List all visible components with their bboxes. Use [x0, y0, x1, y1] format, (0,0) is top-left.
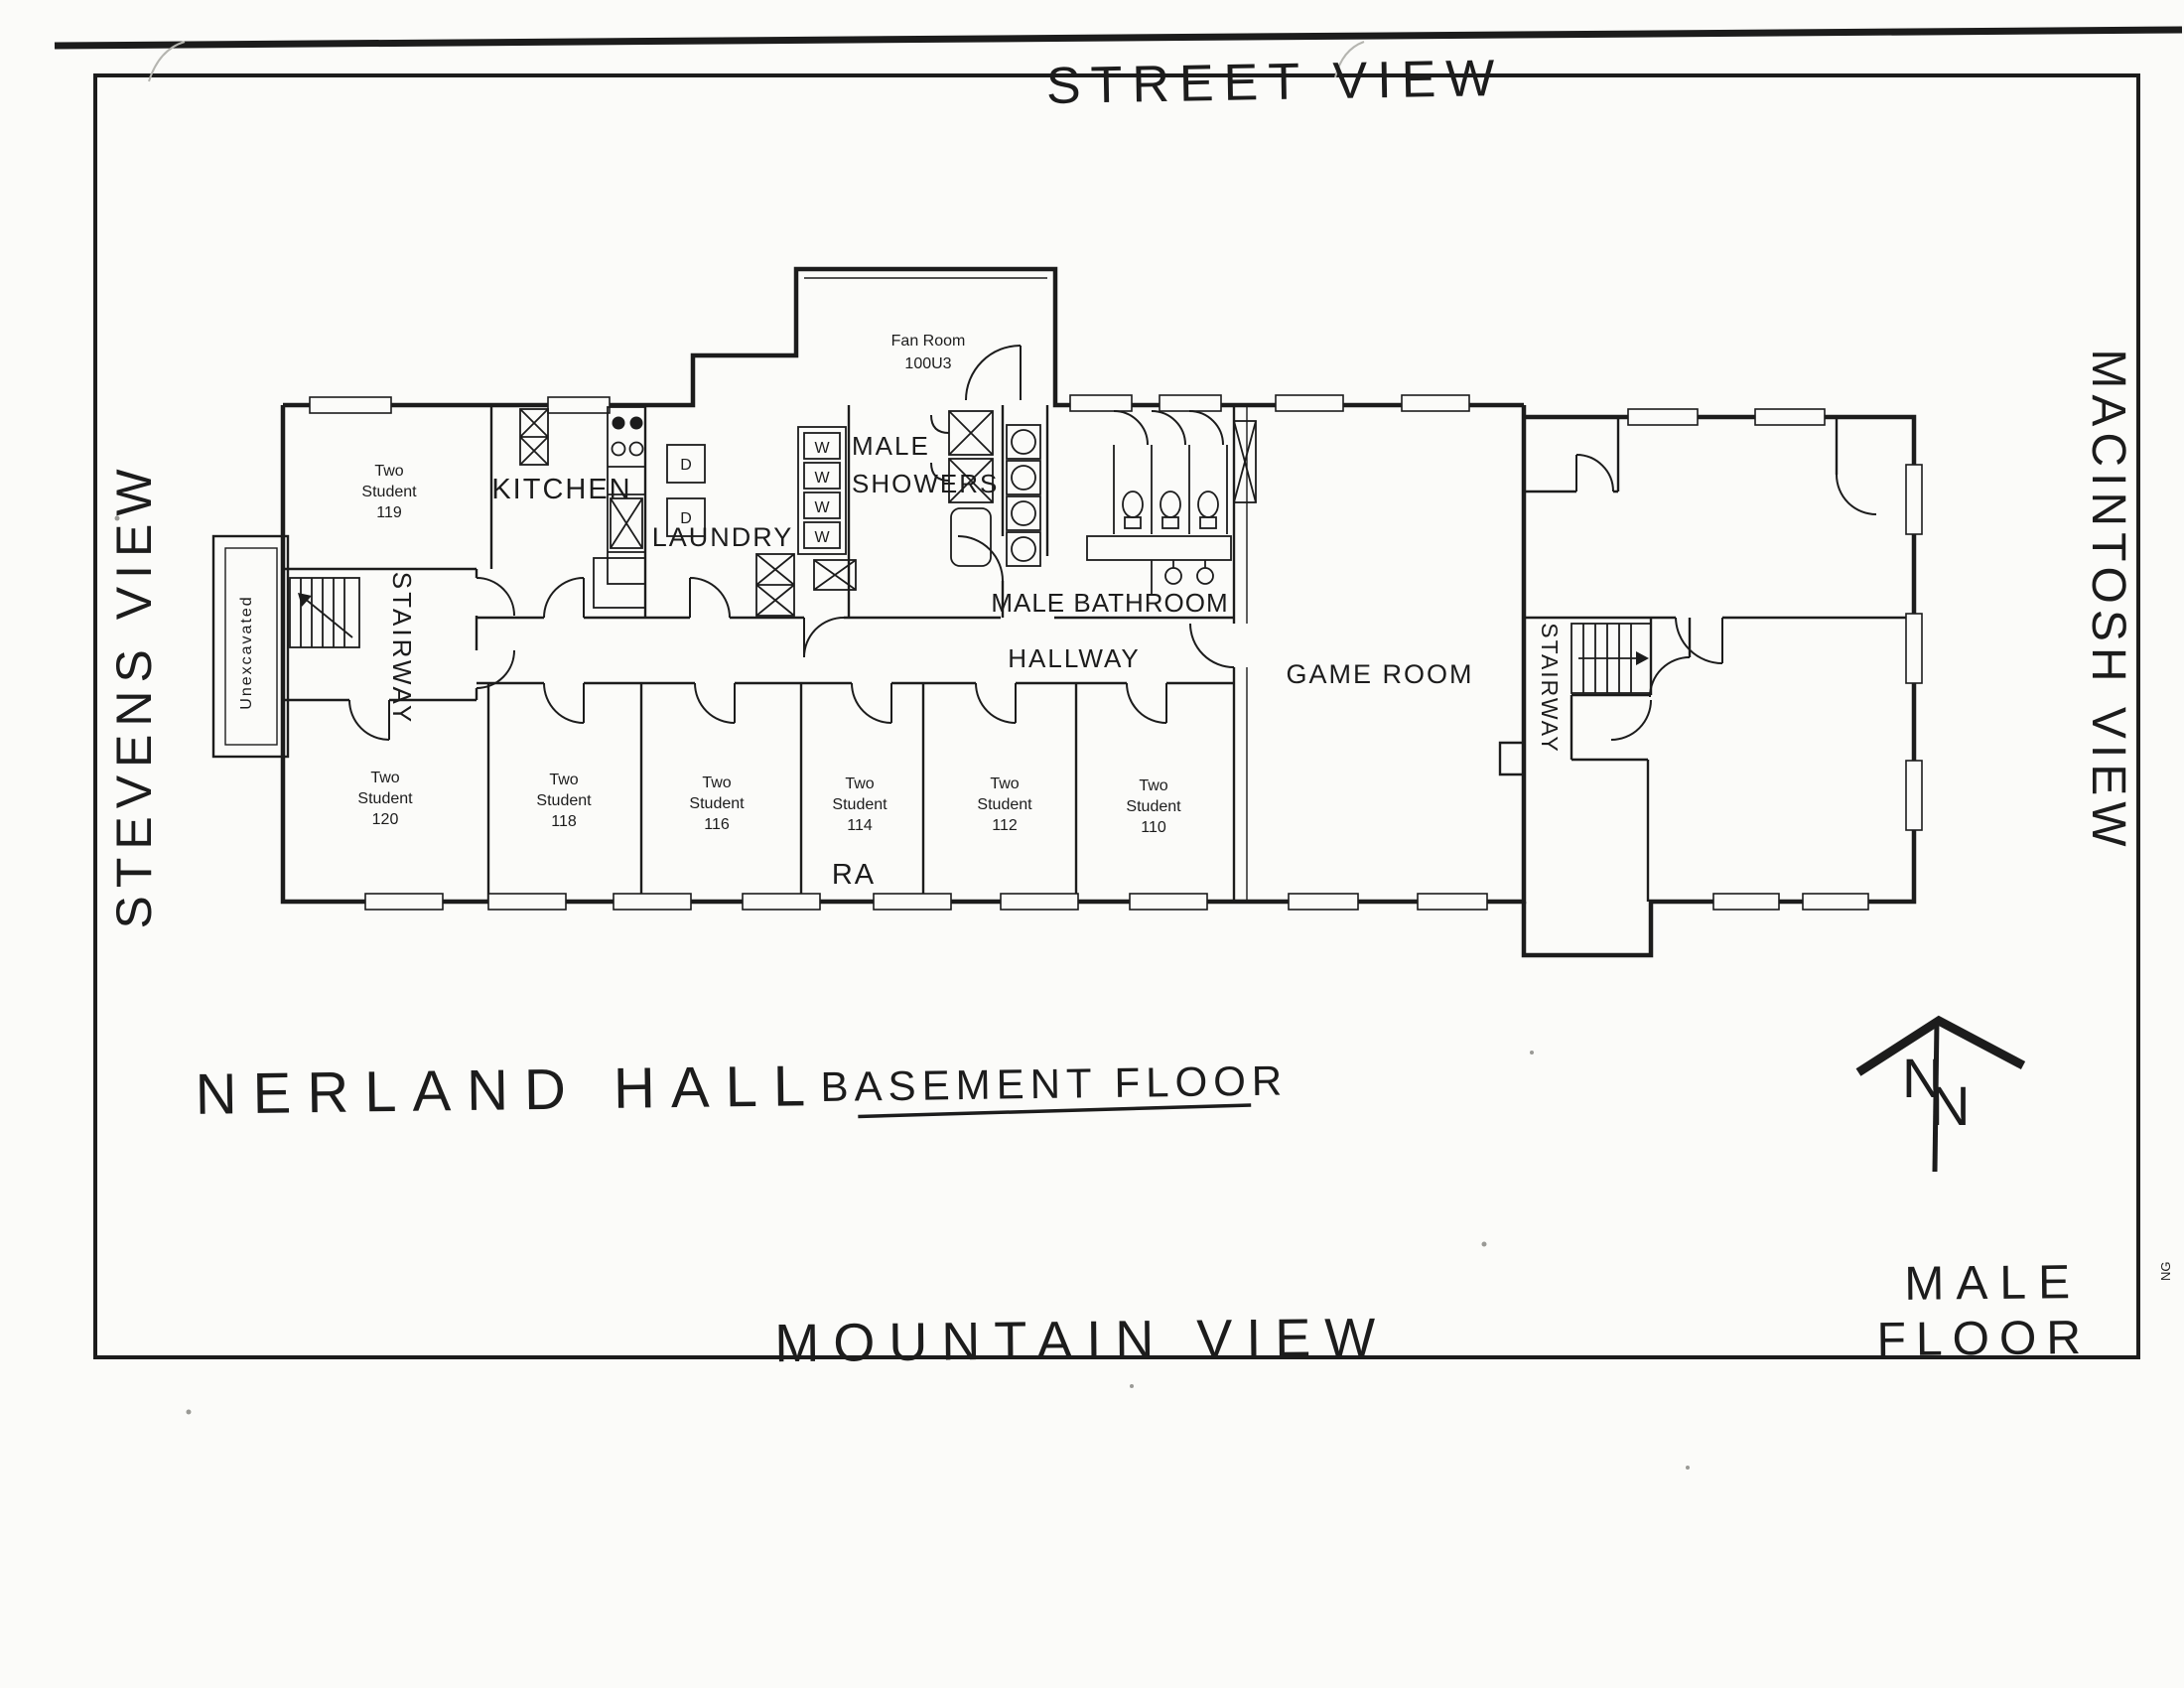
washer-icon: W [804, 522, 840, 548]
laundry-fixtures: D D W W W W [667, 427, 856, 616]
toilet-icon [1160, 492, 1180, 528]
room-label-stairway-east: STAIRWAY [1537, 623, 1563, 753]
fan-room-line1: Fan Room [891, 333, 966, 350]
mountain-view-label: MOUNTAIN VIEW [774, 1308, 1390, 1373]
duct-shaft-icon [520, 409, 548, 465]
room-114-line3: 114 [847, 817, 873, 834]
room-label-116: Two Student 116 [689, 774, 745, 833]
male-floor-label: MALE FLOOR [1876, 1256, 2091, 1366]
room-119-line1: Two [374, 463, 403, 480]
room-118-line3: 118 [551, 813, 577, 830]
sink-icon [1007, 461, 1040, 494]
male-floor-line2: FLOOR [1876, 1312, 2091, 1366]
room-label-fan-room: Fan Room 100U3 [891, 333, 966, 372]
room-112-line3: 112 [992, 817, 1018, 834]
washer-label: W [814, 470, 830, 487]
door-arc [349, 700, 389, 740]
door-arc [1837, 475, 1876, 514]
room-119-line3: 119 [376, 504, 402, 521]
stairs-east-icon [1571, 624, 1651, 693]
page-border [55, 30, 2182, 1470]
kitchen-cabinet [594, 558, 645, 608]
kitchen-sink-icon [611, 498, 642, 548]
utility-sink-icon [756, 554, 794, 616]
washer-icon: W [804, 492, 840, 518]
urinal-icon [1197, 560, 1213, 584]
room-116-line3: 116 [704, 816, 730, 833]
toilet-stalls [1087, 411, 1231, 596]
room-label-male-bathroom: MALE BATHROOM [991, 588, 1228, 618]
dryer-icon: D [667, 445, 705, 483]
sink-icon [1007, 532, 1040, 566]
sink-icon [1007, 425, 1040, 459]
room-110-line3: 110 [1141, 819, 1166, 836]
room-label-hallway: HALLWAY [1008, 643, 1140, 673]
room-label-ra: RA [832, 859, 876, 891]
fan-room-line2: 100U3 [904, 355, 951, 372]
room-label-110: Two Student 110 [1126, 777, 1181, 836]
street-view-label: STREET VIEW [1045, 50, 1504, 115]
washer-icon: W [804, 463, 840, 489]
room-114-line2: Student [832, 796, 887, 813]
door-arc [1127, 683, 1166, 723]
washer-label: W [814, 440, 830, 457]
scanned-floor-plan-page: STREET VIEW STEVENS VIEW MACINTOSH VIEW … [0, 0, 2184, 1688]
room-label-game-room: GAME ROOM [1286, 659, 1473, 689]
room-110-line2: Student [1126, 798, 1181, 815]
stevens-view-label: STEVENS VIEW [106, 461, 162, 928]
room-label-male-showers-2: SHOWERS [852, 469, 999, 498]
door-arc [804, 618, 844, 657]
building-title: NERLAND HALL [195, 1054, 821, 1127]
room-label-120: Two Student 120 [357, 770, 413, 828]
door-arc [1676, 618, 1722, 663]
door-arc [966, 346, 1021, 400]
room-120-line1: Two [370, 770, 399, 786]
title-block: NERLAND HALL BASEMENT FLOOR [195, 1047, 1288, 1126]
door-arc [958, 536, 1003, 581]
duct-shaft-icon [1234, 421, 1256, 502]
door-arc [477, 578, 514, 616]
room-112-line1: Two [990, 775, 1019, 792]
macintosh-view-label: MACINTOSH VIEW [2082, 349, 2134, 852]
sink-icon [1007, 496, 1040, 530]
north-arrow-icon: N N [1858, 1021, 2023, 1172]
room-118-line2: Student [536, 792, 592, 809]
room-118-line1: Two [549, 772, 578, 788]
bathroom-counter [1087, 536, 1231, 560]
room-label-114: Two Student 114 [832, 775, 887, 834]
room-116-line1: Two [702, 774, 731, 791]
unexcavated-area: Unexcavated [213, 536, 288, 757]
room-label-kitchen: KITCHEN [491, 474, 631, 505]
room-119-line2: Student [361, 484, 417, 500]
door-arc [1576, 455, 1613, 492]
door-arc [1611, 700, 1651, 740]
room-label-119: Two Student 119 [361, 463, 417, 521]
room-112-line2: Student [977, 796, 1032, 813]
door-arc [544, 683, 584, 723]
unexcavated-label: Unexcavated [238, 595, 255, 709]
door-arc [690, 578, 730, 618]
washer-label: W [814, 529, 830, 546]
door-arc [852, 683, 891, 723]
stove-icon [613, 417, 643, 456]
room-label-stairway-west: STAIRWAY [387, 572, 417, 726]
door-arc [1650, 657, 1690, 697]
shower-stall-icon [949, 411, 993, 455]
edge-artifact-text: NG [2158, 1262, 2173, 1282]
room-120-line3: 120 [372, 811, 399, 828]
male-floor-line1: MALE [1904, 1256, 2082, 1311]
room-114-line1: Two [845, 775, 874, 792]
urinal-icon [1165, 560, 1181, 584]
room-label-112: Two Student 112 [977, 775, 1032, 834]
door-arc [1190, 624, 1234, 667]
toilet-icon [1123, 492, 1143, 528]
door-arc [544, 578, 584, 618]
room-116-line2: Student [689, 795, 745, 812]
room-label-laundry: LAUNDRY [652, 522, 794, 552]
door-arc [976, 683, 1016, 723]
washer-icon: W [804, 433, 840, 459]
washer-label: W [814, 499, 830, 516]
stairs-west-icon [290, 578, 359, 647]
dryer-label: D [680, 457, 692, 474]
room-labels: Fan Room 100U3 KITCHEN LAUNDRY MALE SHOW… [357, 333, 1563, 891]
door-arc [695, 683, 735, 723]
bathroom-fixtures [1007, 411, 1256, 596]
room-label-male-showers-1: MALE [852, 431, 930, 461]
north-letter: N [1930, 1074, 1970, 1137]
room-120-line2: Student [357, 790, 413, 807]
floor-title: BASEMENT FLOOR [820, 1056, 1288, 1110]
room-label-118: Two Student 118 [536, 772, 592, 830]
room-110-line1: Two [1139, 777, 1167, 794]
toilet-icon [1198, 492, 1218, 528]
